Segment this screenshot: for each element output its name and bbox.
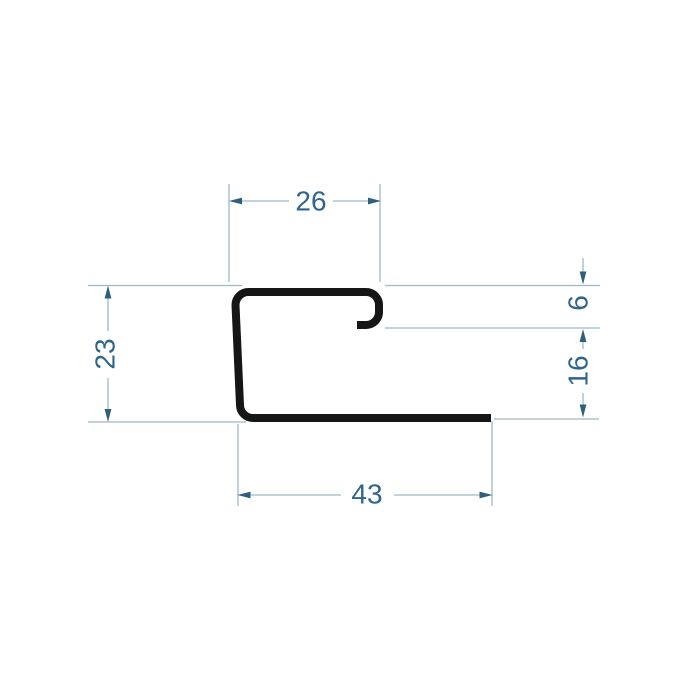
dimension-label-bottom-width: 43 (351, 479, 382, 510)
dimension-label-hook-height: 6 (563, 295, 594, 311)
arrowhead-right (480, 492, 493, 499)
technical-drawing-canvas: 26 23 6 16 (0, 0, 700, 700)
dimension-label-left-height: 23 (90, 338, 121, 369)
dimension-hook-height: 6 (385, 258, 600, 328)
dimension-left-height: 23 (88, 286, 246, 423)
dimension-label-right-height: 16 (563, 355, 594, 386)
dimension-right-height: 16 (494, 329, 599, 419)
dimension-bottom-width: 43 (238, 421, 493, 510)
arrowhead-down (580, 405, 587, 418)
arrowhead-down (580, 272, 587, 285)
arrowhead-right (368, 198, 381, 205)
dimension-top-width: 26 (229, 184, 381, 282)
profile-drawing: 26 23 6 16 (0, 0, 700, 700)
profile-outline (236, 292, 492, 418)
arrowhead-down (105, 409, 112, 422)
arrowhead-left (229, 198, 242, 205)
dimension-label-top-width: 26 (295, 186, 326, 217)
arrowhead-left (238, 492, 251, 499)
arrowhead-up (105, 286, 112, 299)
arrowhead-up (580, 329, 587, 342)
